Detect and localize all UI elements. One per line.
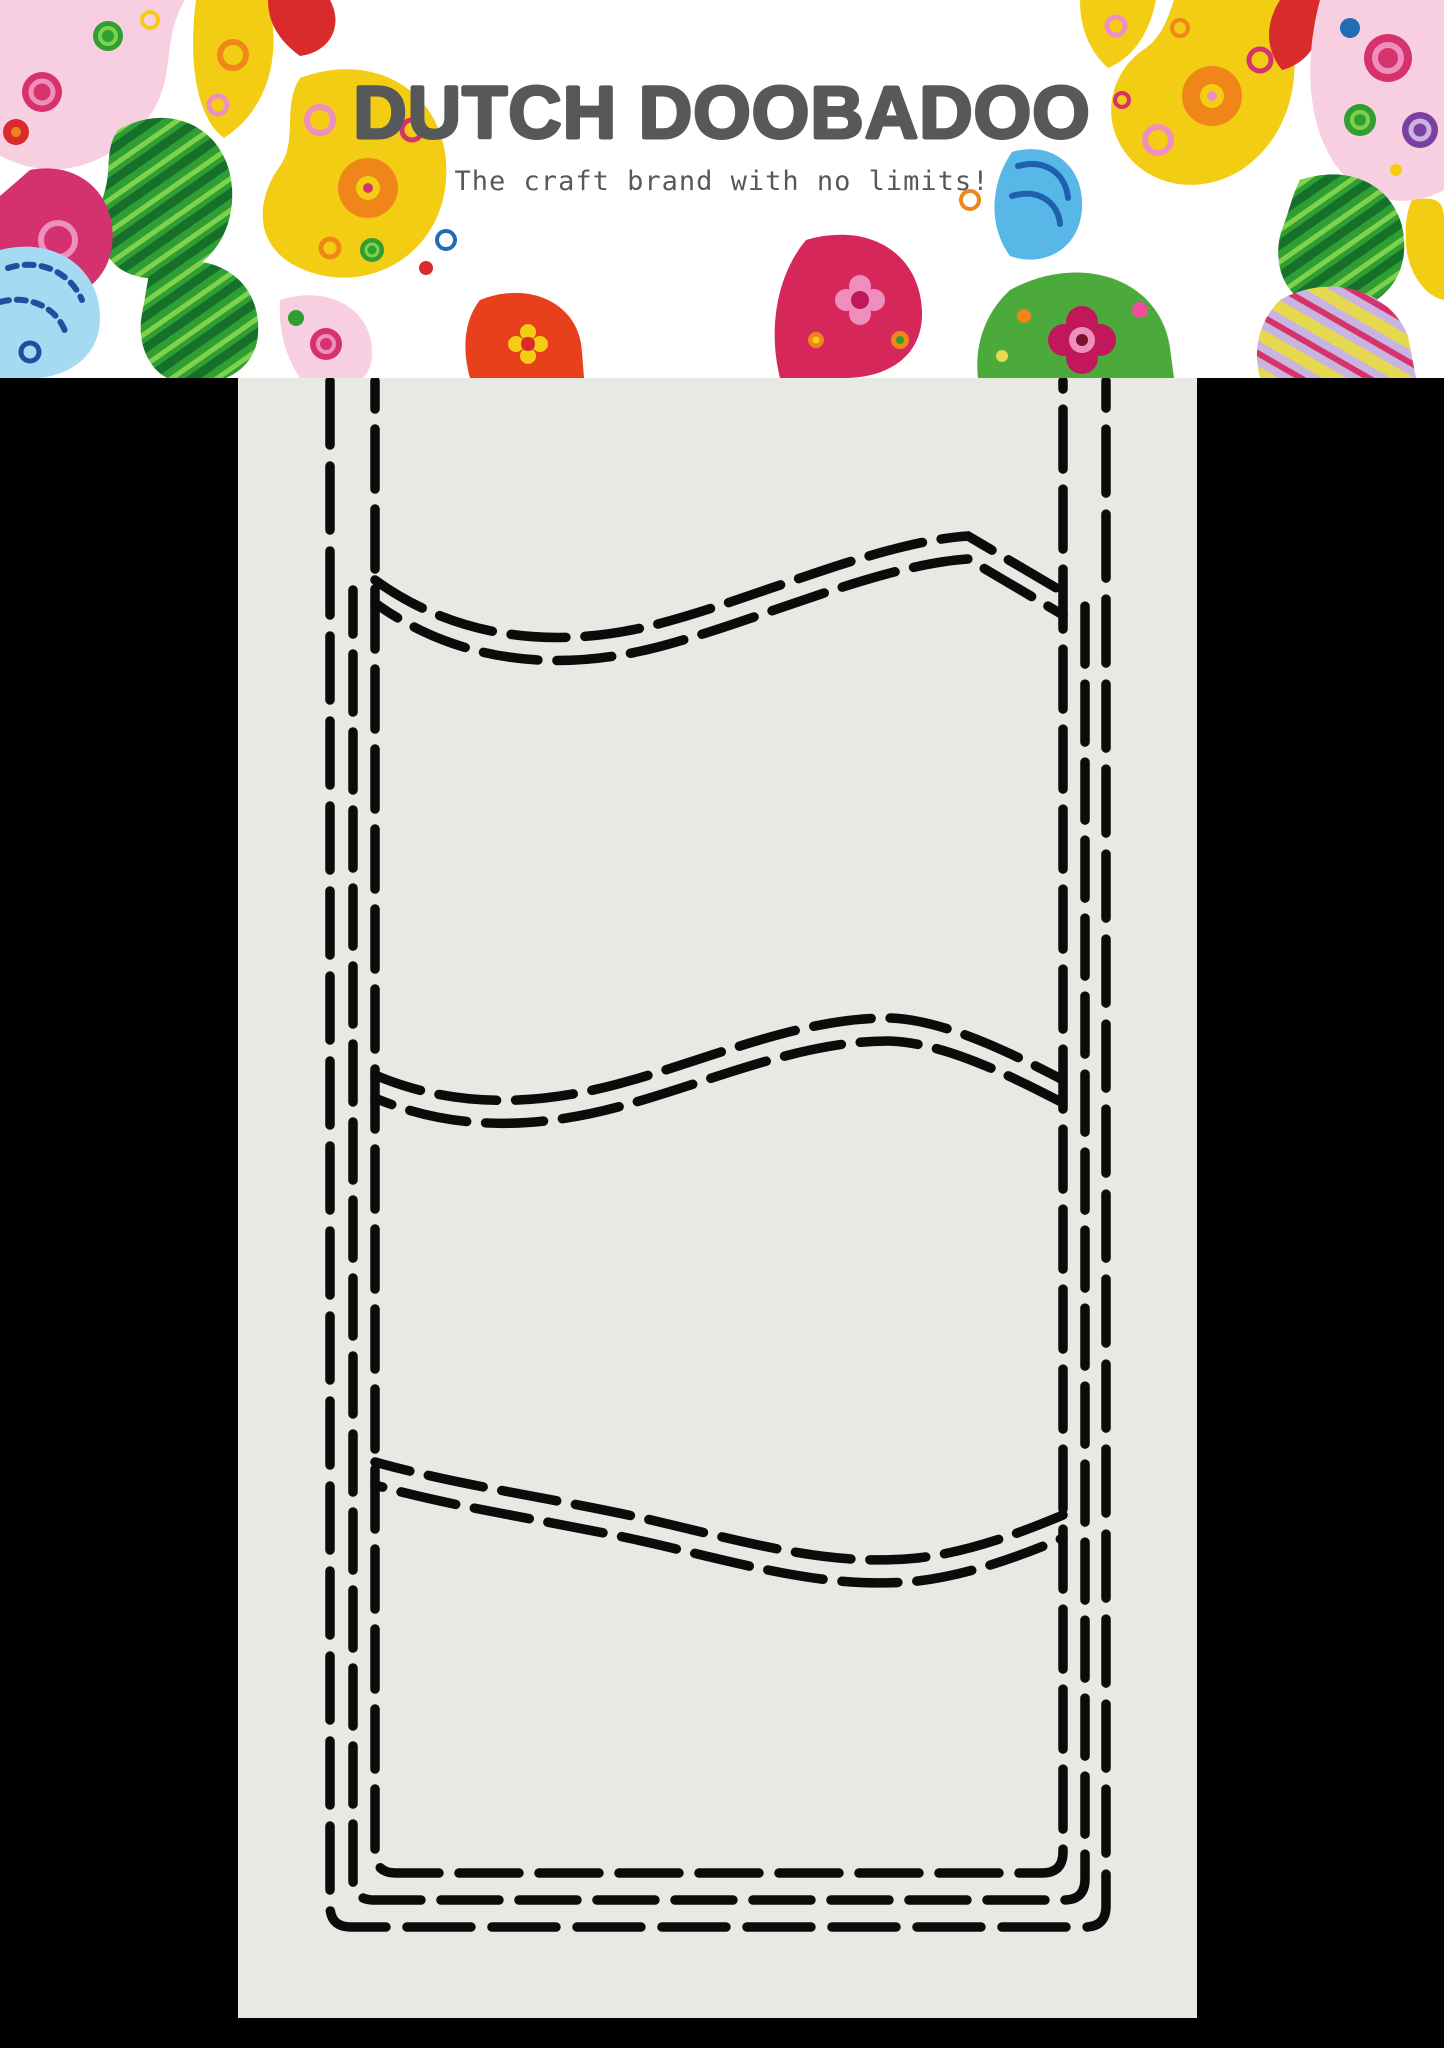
cut-line-inner — [375, 381, 1063, 1873]
brand-block: DUTCH DOOBADOO The craft brand with no l… — [0, 74, 1444, 197]
brand-header: DUTCH DOOBADOO The craft brand with no l… — [0, 0, 1444, 378]
wave-divider-1-lower — [375, 559, 1063, 660]
stencil-sheet — [238, 378, 1197, 2018]
wave-divider-1-upper — [375, 536, 1063, 637]
card-template-drawing — [238, 378, 1197, 2018]
brand-logo: DUTCH DOOBADOO — [0, 74, 1444, 152]
brand-tagline: The craft brand with no limits! — [0, 166, 1444, 197]
product-image: { "header": { "brand": "DUTCH DOOBADOO",… — [0, 0, 1444, 2048]
cut-line-outer — [330, 381, 1106, 1927]
cut-line-middle — [353, 590, 1085, 1900]
